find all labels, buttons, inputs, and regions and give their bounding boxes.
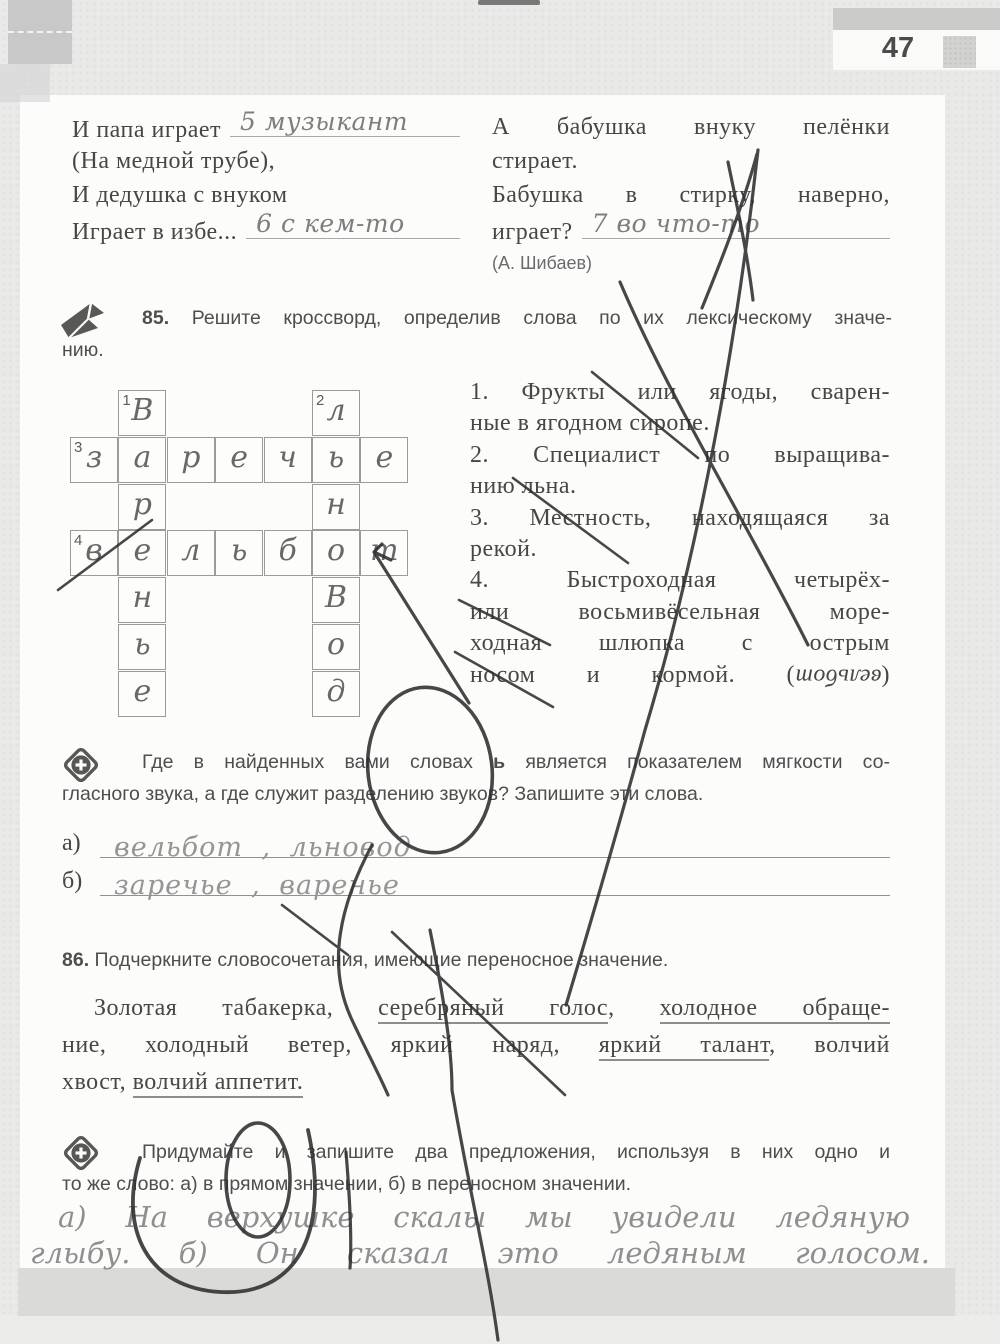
clue-line: носом и кормой. (вельбот) [470,660,890,691]
text-segment: 86. [62,949,95,971]
crossword-cell: 4в [70,530,118,576]
crossword-cell: е [118,671,166,717]
handwritten-sentence-line-1: а) На верхушке скалы мы увидели ледяную [58,1200,910,1234]
handwritten-letter: н [313,487,359,522]
handwritten-letter: т [361,533,407,568]
scanned-workbook-page: 47 И папа играет5 музыкант(На медной тру… [0,0,1000,1344]
text-segment: Где в найденных вами словах [142,751,493,773]
crossword-cell: н [118,577,166,623]
crossword-cell: д [312,671,360,717]
text-segment: хвост, [62,1069,133,1095]
text-segment: Решите кроссворд, определив слова по их … [192,307,892,329]
handwritten-answer: 6 с кем-то [256,207,404,241]
text-segment: Подчеркните словосочетания, имеющие пере… [95,949,669,971]
instruction-line: 86. Подчеркните словосочетания, имеющие … [62,944,892,976]
text-segment: ) [882,662,891,688]
handwritten-letter: В [119,393,165,428]
flipped-answer-word: вельбот [795,660,881,691]
poem-line: (На медной трубе), [72,144,460,178]
instruction-line: нию. [62,334,892,366]
handwritten-letter: е [119,533,165,568]
text-segment: яркий талант [599,1032,769,1061]
crossword-cell: р [167,437,215,483]
handwritten-answer: заречье , варенье [114,870,400,901]
handwritten-letter: ь [313,440,359,475]
handwritten-letter: р [119,487,165,522]
crossword-cell: о [312,530,360,576]
handwritten-letter: л [168,533,214,568]
scan-bottom-edge [0,1316,1000,1344]
handwritten-letter: о [313,533,359,568]
text-segment: , [608,995,659,1021]
exercise-85-instruction: 85. Решите кроссворд, определив слова по… [62,302,892,366]
handwritten-letter: ь [216,533,262,568]
crossword-cell: ь [312,437,360,483]
text-segment: 85. [142,307,192,329]
two-sentences-task-text: Придумайте и запишите два предложения, и… [62,1136,890,1200]
handwritten-letter: е [216,440,262,475]
text-segment: , волчий [769,1032,890,1058]
crossword-cell: 1В [118,390,166,436]
clue-line: ходная шлюпка с острым [470,628,890,659]
header-gray-square [943,36,976,68]
handwritten-letter: ч [265,440,311,475]
answer-blank: 5 музыкант [230,110,460,137]
scan-corner-artifact [8,0,72,64]
header-gray-strip [833,8,1000,30]
crossword-cell: н [312,484,360,530]
crossword-cell: 3з [70,437,118,483]
text-segment: Золотая табакерка, [94,995,378,1021]
text-segment: является показателем мягкости со- [505,751,890,773]
clue-line: 3. Местность, находящаяся за [470,503,890,534]
crossword-cell: е [118,530,166,576]
poem-line: Играет в избе...6 с кем-то [72,212,460,246]
text-segment: холодное обраще- [660,995,890,1024]
text-segment: серебряный голос [378,995,608,1024]
crossword-cell: е [215,437,263,483]
instruction-line: Где в найденных вами словах ь является п… [62,746,890,778]
crossword-cell: о [312,624,360,670]
phrase-line: хвост, волчий аппетит. [62,1064,890,1101]
answer-blank: 6 с кем-то [246,212,460,239]
answer-row: б)заречье , варенье [62,858,890,896]
poem-line: стирает. [492,144,890,178]
handwritten-letter: а [119,440,165,475]
handwritten-letter: е [119,674,165,709]
crossword-clues: 1. Фрукты или ягоды, сварен-ные в ягодно… [470,377,890,691]
poem-line: И папа играет5 музыкант [72,110,460,144]
text-segment: носом и кормой. ( [470,662,795,688]
answer-label: б) [62,866,100,896]
handwritten-letter: В [313,580,359,615]
crossword-cell: е [360,437,408,483]
crossword-cell: ь [118,624,166,670]
scan-shadow-band [18,1268,955,1316]
answer-label: а) [62,828,100,858]
instruction-line: 85. Решите кроссворд, определив слова по… [62,302,892,334]
handwritten-letter: л [313,393,359,428]
handwritten-letter: в [71,533,117,568]
poem-line: А бабушка внуку пелёнки [492,110,890,144]
clue-line: ные в ягодном сиропе. [470,408,890,439]
handwritten-answer: 7 во что-то [592,207,760,241]
crossword-grid: 1В2л3заречьерн4вельботнВьоед [70,390,410,718]
handwritten-letter: б [265,533,311,568]
scan-corner-artifact-2 [0,64,50,102]
poem-author: (А. Шибаев) [492,246,890,280]
clue-line: 4. Быстроходная четырёх- [470,565,890,596]
crossword-cell: ч [264,437,312,483]
instruction-line: то же слово: а) в прямом значении, б) в … [62,1168,890,1200]
instruction-line: гласного звука, а где служит разделению … [62,778,890,810]
phrase-line: Золотая табакерка, серебряный голос, хол… [62,990,890,1027]
scan-top-smudge [478,0,540,5]
text-segment: ние, холодный ветер, яркий наряд, [62,1032,599,1058]
clue-line: 2. Специалист по выращива- [470,440,890,471]
handwritten-letter: р [168,440,214,475]
crossword-cell: ь [215,530,263,576]
handwritten-letter: д [313,674,359,709]
answer-row: а)вельбот , льновод [62,820,890,858]
handwritten-letter: о [313,627,359,662]
answer-line: заречье , варенье [100,861,890,896]
poem-line: играет?7 во что-то [492,212,890,246]
handwritten-letter: ь [119,627,165,662]
crossword-cell: б [264,530,312,576]
answer-lines: а)вельбот , льноводб)заречье , варенье [62,820,890,896]
crossword-cell: р [118,484,166,530]
poem-left-column: И папа играет5 музыкант(На медной трубе)… [72,110,460,246]
clue-line: или восьмивёсельная море- [470,597,890,628]
instruction-line: Придумайте и запишите два предложения, и… [62,1136,890,1168]
phrase-line: ние, холодный ветер, яркий наряд, яркий … [62,1027,890,1064]
text-segment: волчий аппетит. [133,1069,304,1098]
answer-blank: 7 во что-то [582,212,890,239]
handwritten-answer: вельбот , льновод [114,832,412,863]
exercise-86-phrases: Золотая табакерка, серебряный голос, хол… [62,990,890,1101]
crossword-cell: а [118,437,166,483]
handwritten-letter: з [71,440,117,475]
crossword-cell: л [167,530,215,576]
clue-line: 1. Фрукты или ягоды, сварен- [470,377,890,408]
crossword-cell: 2л [312,390,360,436]
crossword-cell: т [360,530,408,576]
handwritten-answer: 5 музыкант [240,105,408,139]
soft-sign-task-text: Где в найденных вами словах ь является п… [62,746,890,810]
handwritten-sentence-line-2: глыбу. б) Он сказал это ледяным голосом. [30,1236,930,1270]
answer-line: вельбот , льновод [100,823,890,858]
handwritten-letter: н [119,580,165,615]
crossword-cell: В [312,577,360,623]
text-segment: ь [493,751,505,773]
clue-line: нию льна. [470,471,890,502]
page-number-box: 47 [833,30,1000,70]
poem-right-column: А бабушка внуку пелёнкистирает.Бабушка в… [492,110,890,280]
exercise-86-instruction: 86. Подчеркните словосочетания, имеющие … [62,944,892,976]
clue-line: рекой. [470,534,890,565]
handwritten-letter: е [361,440,407,475]
